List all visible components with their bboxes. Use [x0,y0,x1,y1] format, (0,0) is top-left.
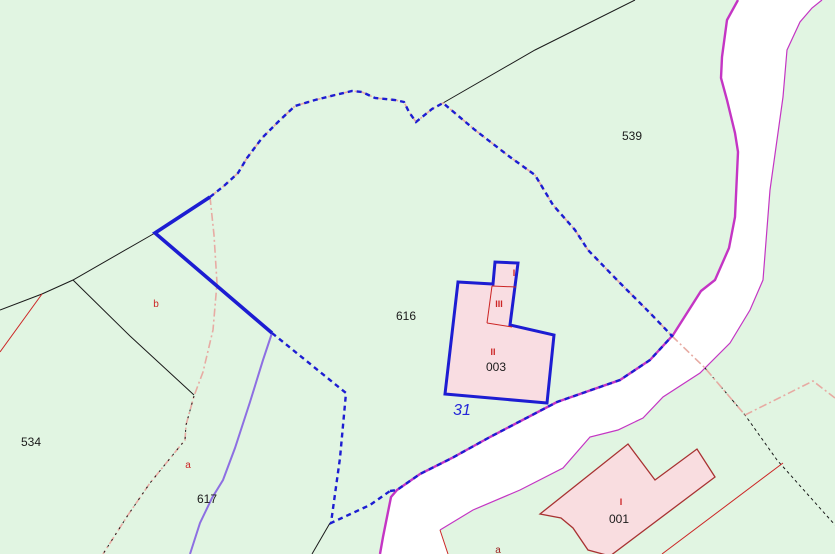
parcel-label-617[interactable]: 617 [197,492,217,506]
building-001-section-1-label: I [620,497,623,507]
parcel-label-616[interactable]: 616 [396,309,416,323]
map-canvas[interactable]: 539 616 534 617 b a a I III II 003 I 001… [0,0,835,554]
cadastral-map-viewport[interactable]: 539 616 534 617 b a a I III II 003 I 001… [0,0,835,554]
subdivision-label-a[interactable]: a [185,460,191,471]
subdivision-label-a-south[interactable]: a [495,545,501,554]
building-003-section-1-label: I [513,268,516,278]
building-001-number-label[interactable]: 001 [609,512,629,526]
address-label-31[interactable]: 31 [453,402,471,419]
parcel-label-534[interactable]: 534 [21,435,41,449]
building-003-section-3-label: III [495,299,503,309]
parcel-label-539[interactable]: 539 [622,129,642,143]
building-003-section-2-label: II [490,347,495,357]
building-003-number-label[interactable]: 003 [486,360,506,374]
subdivision-label-b[interactable]: b [153,299,159,310]
